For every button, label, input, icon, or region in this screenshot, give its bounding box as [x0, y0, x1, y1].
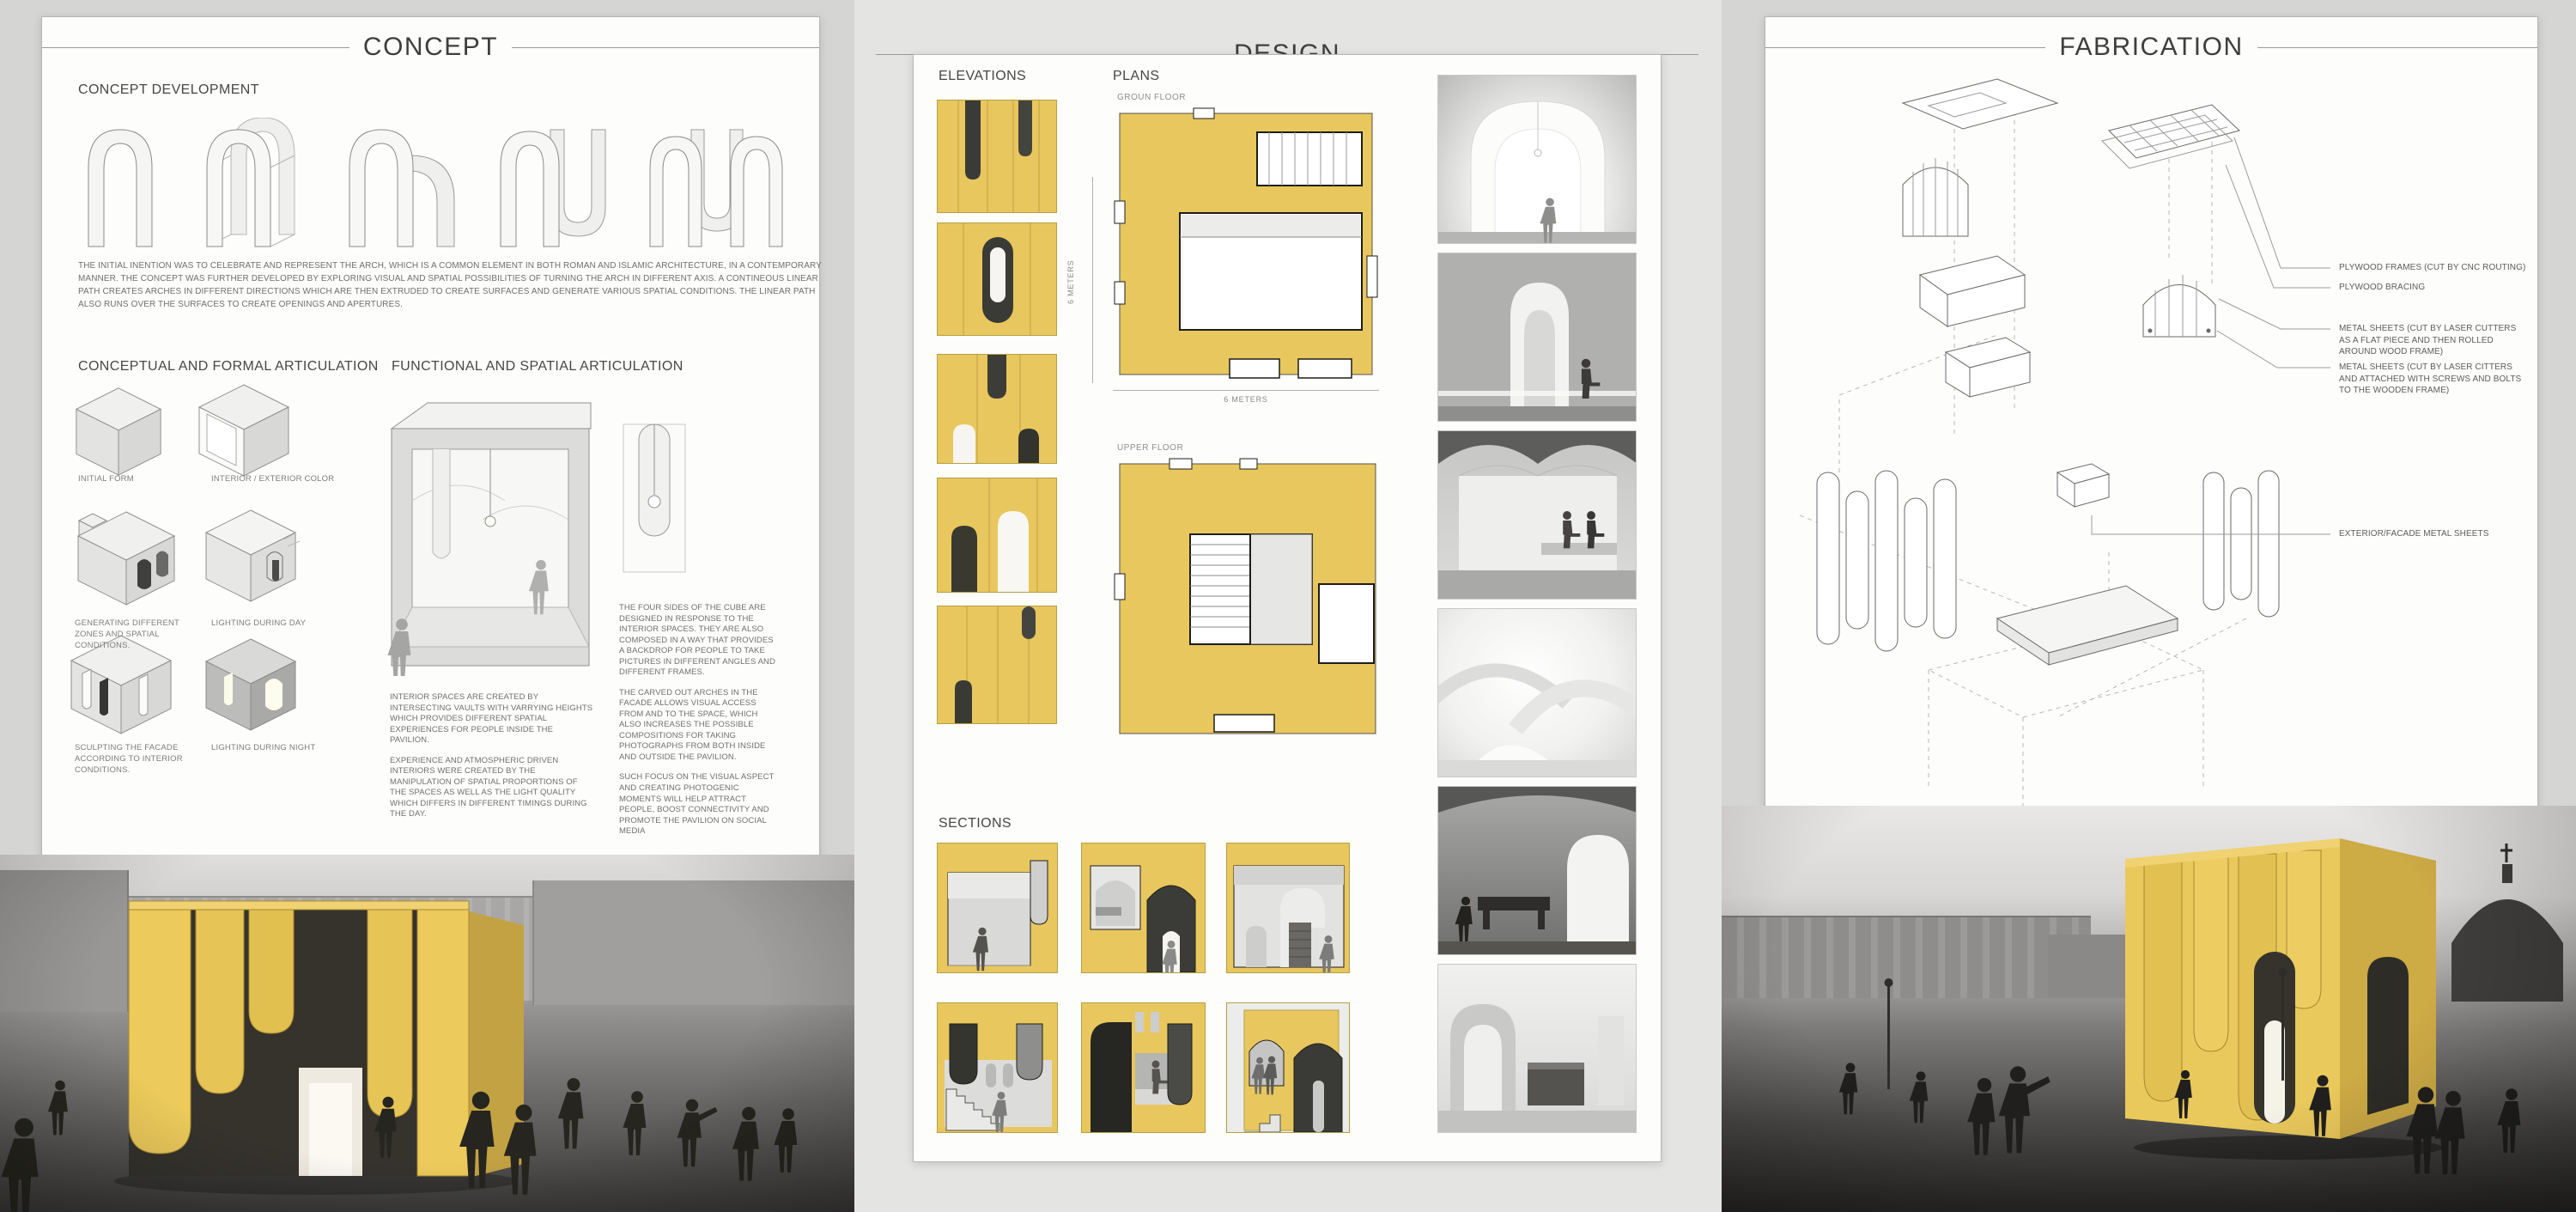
- title-line: [2257, 47, 2537, 48]
- light-slot-detail-drawing: [613, 419, 696, 577]
- cube-lighting-day: [198, 503, 303, 606]
- plan-dim-vertical: 6 METERS: [1066, 244, 1075, 304]
- fabrication-board: FABRICATION: [1765, 16, 2538, 894]
- ground-floor-plan: [1113, 105, 1379, 381]
- sections-heading: SECTIONS: [939, 816, 1012, 831]
- diagram-label-zoning: GENERATING DIFFERENT ZONES AND SPATIAL C…: [75, 618, 208, 651]
- render-tall-arch-niche: [1437, 253, 1637, 422]
- title-line: [42, 47, 349, 48]
- cube-interior-exterior: [190, 378, 298, 479]
- section-tile-1: [937, 843, 1058, 973]
- section-tile-3: [1226, 843, 1350, 973]
- presentation-board: CONCEPT CONCEPT DEVELOPMENT: [0, 0, 2576, 1212]
- arch-step-4-drawing: [489, 118, 619, 255]
- cube-zoning: [64, 498, 179, 608]
- concept-board: CONCEPT CONCEPT DEVELOPMENT: [41, 16, 820, 893]
- fabrication-panel-title: FABRICATION: [2059, 33, 2243, 62]
- formal-articulation-heading: CONCEPTUAL AND FORMAL ARTICULATION: [78, 359, 379, 375]
- plan-dim-line-vertical: [1092, 177, 1093, 383]
- callout-metal-sheets-bolted: METAL SHEETS (CUT BY LASER CITTERS AND A…: [2339, 362, 2528, 397]
- facade-paragraph-3: SUCH FOCUS ON THE VISUAL ASPECT AND CREA…: [619, 772, 775, 837]
- cube-initial-form: [68, 381, 169, 478]
- spatial-articulation-heading: FUNCTIONAL AND SPATIAL ARTICULATION: [392, 359, 683, 375]
- section-tile-4: [937, 1002, 1058, 1133]
- arch-step-2-drawing: [191, 118, 313, 255]
- fabrication-title-row: FABRICATION: [1765, 33, 2537, 62]
- arch-step-5-drawing: [641, 118, 789, 255]
- title-line: [512, 47, 819, 48]
- callout-exterior-facade-sheets: EXTERIOR/FACADE METAL SHEETS: [2339, 528, 2535, 540]
- render-dark-lounge: [1437, 786, 1637, 955]
- design-board: ELEVATIONS PLANS GROUN FLOOR: [913, 54, 1662, 1162]
- callout-plywood-frames: PLYWOOD FRAMES (CUT BY CNC ROUTING): [2339, 262, 2535, 274]
- arch-step-1-drawing: [73, 118, 169, 255]
- interior-text-block: INTERIOR SPACES ARE CREATED BY INTERSECT…: [390, 692, 594, 830]
- render-vaulted-seating: [1437, 430, 1637, 600]
- render-soft-vaults: [1437, 608, 1637, 777]
- cube-lighting-night: [198, 632, 303, 735]
- callout-metal-sheets-rolled: METAL SHEETS (CUT BY LASER CUTTERS AS A …: [2339, 323, 2528, 358]
- diagram-label-lighting-night: LIGHTING DURING NIGHT: [211, 743, 331, 754]
- photo-context-right: [1722, 806, 2576, 1212]
- plans-heading: PLANS: [1113, 69, 1159, 84]
- concept-intro-text: THE INITIAL INENTION WAS TO CELEBRATE AN…: [78, 259, 827, 311]
- exploded-axonometric-drawing: [1800, 69, 2332, 825]
- photo-context-left: [0, 855, 854, 1212]
- diagram-label-initial-form: INITIAL FORM: [78, 474, 181, 485]
- interior-paragraph-2: EXPERIENCE AND ATMOSPHERIC DRIVEN INTERI…: [390, 756, 594, 820]
- callout-plywood-bracing: PLYWOOD BRACING: [2339, 282, 2535, 294]
- section-tile-5: [1081, 1002, 1206, 1133]
- diagram-label-interior-exterior: INTERIOR / EXTERIOR COLOR: [211, 474, 349, 485]
- photo-right-vignette: [1722, 806, 2576, 1212]
- concept-panel-title: CONCEPT: [363, 33, 498, 62]
- arch-development-sequence: [73, 105, 811, 255]
- arch-step-3-drawing: [336, 118, 466, 255]
- diagram-label-sculpting: SCULPTING THE FACADE ACCORDING TO INTERI…: [75, 743, 195, 776]
- plan-dim-line-horizontal: [1113, 390, 1379, 391]
- elevation-tile-5: [937, 606, 1057, 724]
- cutaway-cube-drawing: [381, 391, 598, 676]
- facade-paragraph-2: THE CARVED OUT ARCHES IN THE FACADE ALLO…: [619, 688, 775, 764]
- ground-floor-label: GROUN FLOOR: [1117, 93, 1186, 102]
- render-arch-corridor: [1437, 75, 1637, 244]
- upper-floor-label: UPPER FLOOR: [1117, 443, 1183, 453]
- section-tile-6: [1226, 1002, 1350, 1133]
- elevation-tile-4: [937, 478, 1057, 593]
- elevation-tile-3: [937, 354, 1057, 464]
- photo-left-vignette: [0, 855, 854, 1212]
- elevation-tile-2: [937, 222, 1057, 336]
- title-line: [1765, 47, 2045, 48]
- section-tile-2: [1081, 843, 1206, 973]
- concept-title-row: CONCEPT: [42, 33, 819, 62]
- diagram-label-lighting-day: LIGHTING DURING DAY: [211, 618, 331, 630]
- interior-paragraph-1: INTERIOR SPACES ARE CREATED BY INTERSECT…: [390, 692, 594, 746]
- elevations-heading: ELEVATIONS: [939, 69, 1026, 84]
- elevation-tile-1: [937, 100, 1057, 213]
- upper-floor-plan: [1113, 457, 1383, 740]
- facade-paragraph-1: THE FOUR SIDES OF THE CUBE ARE DESIGNED …: [619, 603, 775, 679]
- concept-development-heading: CONCEPT DEVELOPMENT: [78, 82, 259, 98]
- render-white-gallery: [1437, 964, 1637, 1133]
- plan-dim-horizontal: 6 METERS: [1113, 395, 1379, 404]
- facade-text-block: THE FOUR SIDES OF THE CUBE ARE DESIGNED …: [619, 603, 775, 847]
